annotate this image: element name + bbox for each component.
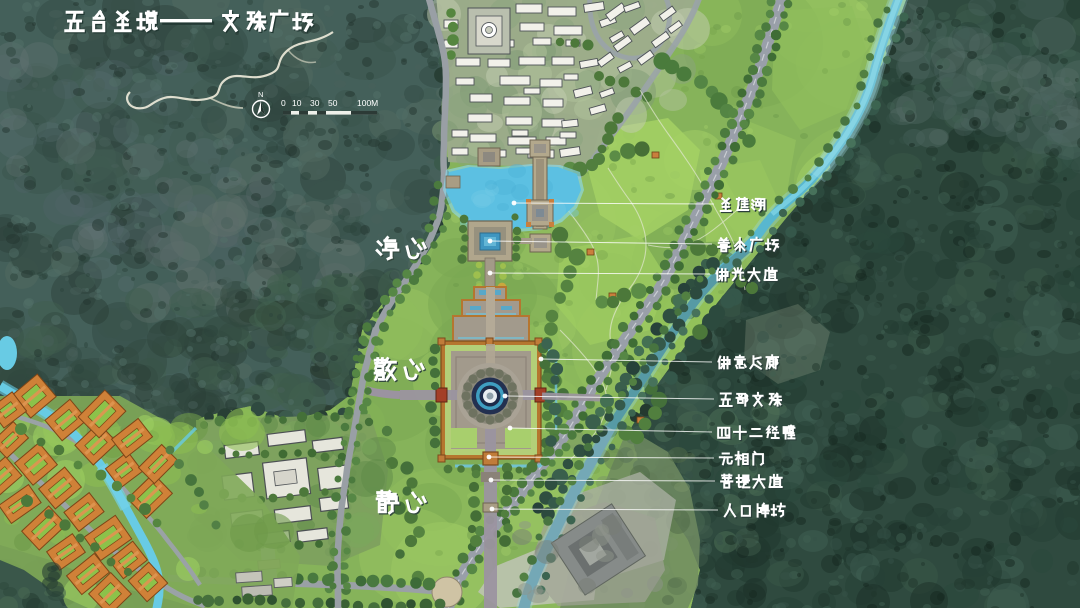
svg-text:50: 50	[328, 98, 338, 108]
svg-text:10: 10	[292, 98, 302, 108]
svg-text:N: N	[258, 90, 263, 99]
svg-text:30: 30	[310, 98, 320, 108]
svg-text:0: 0	[281, 98, 286, 108]
svg-text:100M: 100M	[357, 98, 378, 108]
